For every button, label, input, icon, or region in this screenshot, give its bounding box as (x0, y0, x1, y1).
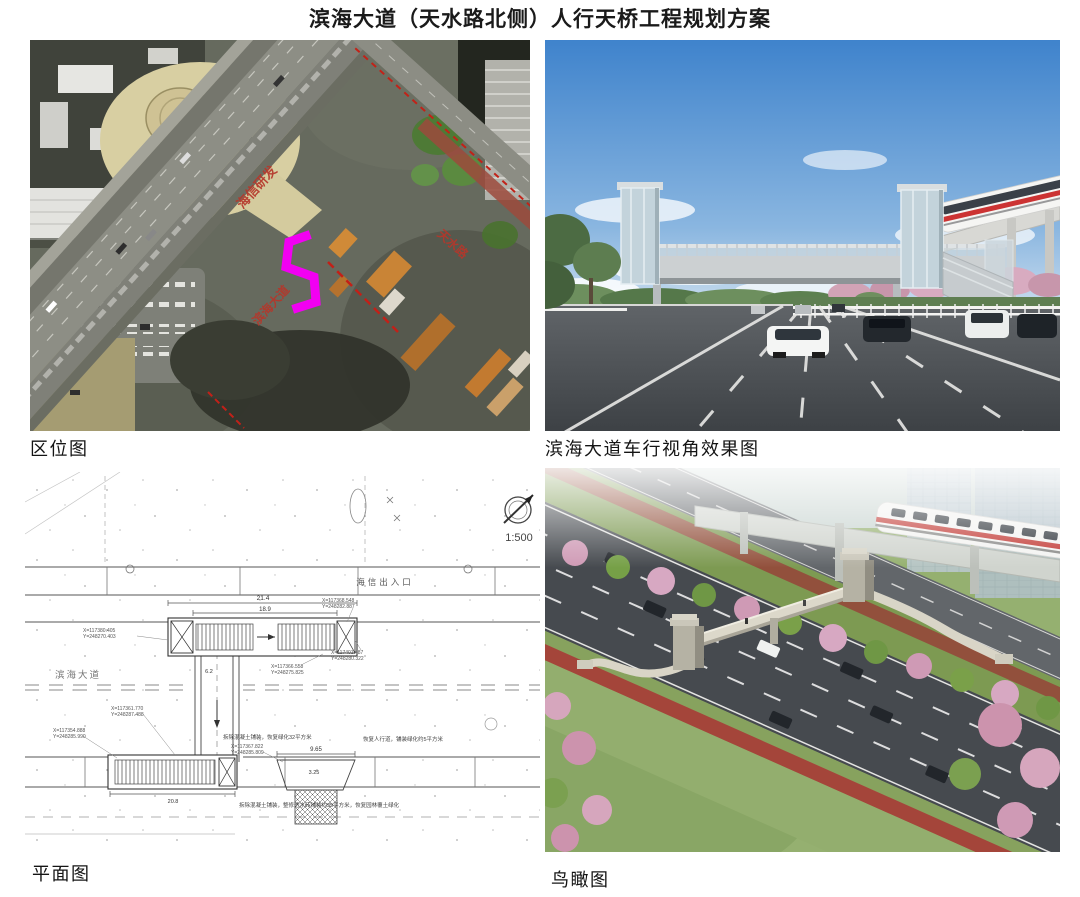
document-page: 滨海大道（天水路北侧）人行天桥工程规划方案 (0, 0, 1080, 897)
dim-6-2: 6.2 (205, 669, 213, 675)
caption-aerial: 鸟瞰图 (551, 866, 610, 892)
plan-drawing-panel: 1:500 海信出入口 滨海大道 (25, 472, 540, 852)
svg-text:X=117380.405Y=248270.403: X=117380.405Y=248270.403 (83, 628, 116, 640)
dim-18-9: 18.9 (259, 607, 271, 613)
plan-scale: 1:500 (505, 532, 533, 544)
svg-text:X=117354.888Y=248285.990: X=117354.888Y=248285.990 (53, 728, 86, 740)
elevator-tower-left (670, 614, 704, 670)
location-map-panel: 海信研发 滨海大道 天水路 (30, 40, 530, 431)
plan-entrance-label: 海信出入口 (356, 577, 414, 587)
caption-location-map: 区位图 (30, 435, 89, 461)
svg-text:X=117366.558Y=248275.825: X=117366.558Y=248275.825 (271, 664, 304, 676)
driver-view-image (545, 40, 1060, 431)
dim-9-65: 9.65 (310, 747, 322, 753)
page-title: 滨海大道（天水路北侧）人行天桥工程规划方案 (0, 3, 1080, 33)
svg-text:X=117367.822Y=248285.809: X=117367.822Y=248285.809 (231, 744, 264, 756)
aerial-view-panel (545, 468, 1060, 852)
svg-text:X=117401.487Y=248280.322: X=117401.487Y=248280.322 (331, 650, 364, 662)
dim-21-4: 21.4 (257, 595, 270, 602)
svg-text:X=117368.548Y=248282.887: X=117368.548Y=248282.887 (322, 598, 355, 610)
driver-view-panel (545, 40, 1060, 431)
svg-text:拆除混凝土铺装，恢复绿化32平方米: 拆除混凝土铺装，恢复绿化32平方米 (223, 733, 312, 741)
elevator-tower-right (897, 184, 947, 288)
elevator-tower-left (617, 182, 663, 284)
aerial-view-image (545, 468, 1060, 852)
svg-text:恢复人行道，铺装绿化约5平方米: 恢复人行道，铺装绿化约5平方米 (363, 735, 444, 743)
dim-3-25: 3.25 (309, 770, 320, 776)
plan-drawing-image: 1:500 海信出入口 滨海大道 (25, 472, 540, 852)
dim-20-8: 20.8 (168, 799, 179, 805)
caption-plan: 平面图 (32, 860, 91, 886)
svg-text:拆除混凝土铺装，整修透水砖铺装约35平方米，恢复园林覆土绿化: 拆除混凝土铺装，整修透水砖铺装约35平方米，恢复园林覆土绿化 (239, 801, 400, 809)
location-map-image: 海信研发 滨海大道 天水路 (30, 40, 530, 431)
caption-driver-view: 滨海大道车行视角效果图 (545, 435, 760, 461)
plan-road-label: 滨海大道 (55, 669, 101, 681)
svg-text:X=117361.770Y=248287.488: X=117361.770Y=248287.488 (111, 706, 144, 718)
